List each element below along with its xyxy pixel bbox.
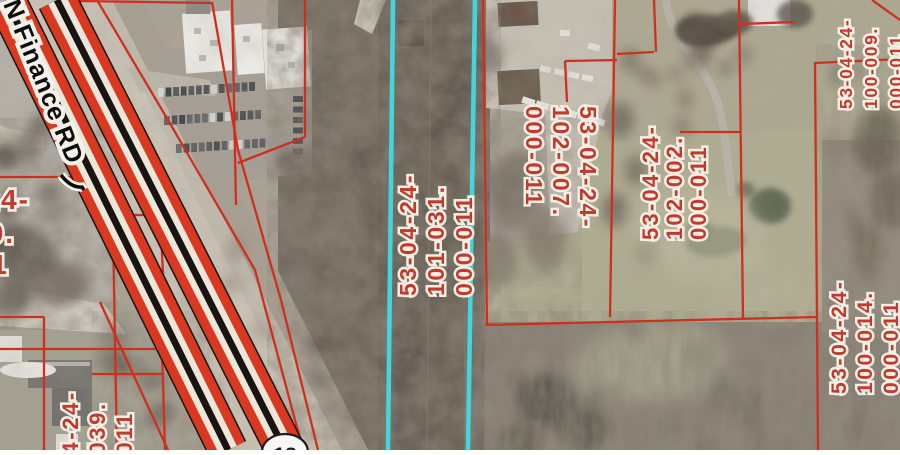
svg-text:53-04-24-: 53-04-24- [575,106,601,229]
svg-text:101-039.: 101-039. [85,401,110,450]
svg-text:53-04-24-: 53-04-24- [828,280,851,394]
svg-text:53-04-24-: 53-04-24- [836,19,856,109]
svg-text:100-009.: 100-009. [861,27,881,109]
svg-text:18: 18 [273,444,297,450]
svg-text:53-04-24-: 53-04-24- [58,390,83,450]
svg-text:000-011: 000-011 [686,145,711,240]
svg-text:000-011: 000-011 [451,195,477,296]
svg-text:000-011: 000-011 [521,106,547,207]
svg-text:53-04-24-: 53-04-24- [638,125,663,240]
svg-text:000-011: 000-011 [880,300,900,394]
svg-text:000-011: 000-011 [112,411,137,450]
svg-text:100-014.: 100-014. [854,290,877,394]
svg-text:101-031.: 101-031. [423,184,449,296]
svg-text:102-007.: 102-007. [548,106,574,218]
svg-text:102-002.: 102-002. [662,136,687,240]
svg-text:101-029.: 101-029. [0,218,15,249]
svg-text:000-011: 000-011 [886,35,900,109]
svg-text:53-04-24-: 53-04-24- [395,173,421,296]
svg-text:000-011: 000-011 [0,249,9,280]
svg-text:53-04-24-: 53-04-24- [0,184,30,215]
